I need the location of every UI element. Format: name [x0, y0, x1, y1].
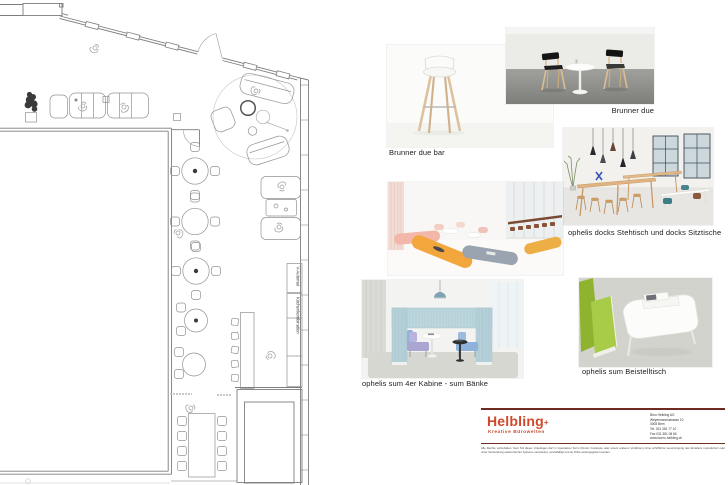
legal-text: Alle Rechte vorbehalten. Kein Teil diese… [481, 446, 725, 454]
floor-plan: V-Automat Küchenkombination [0, 0, 364, 485]
photo-ophelis-sum-baenke [388, 182, 563, 275]
photo-ophelis-sum-kabine [362, 280, 523, 378]
plan-booth [261, 177, 301, 240]
letterhead-footer: Helbling+ Kreative Bürowelten Büro Helbl… [481, 408, 725, 454]
photo-ophelis-sum-beistelltisch [579, 278, 712, 367]
product-label-brunner-due: Brunner due [506, 106, 654, 115]
photo-ophelis-docks [563, 128, 713, 225]
plan-label-kuechenkombination: Küchenkombination [296, 297, 301, 334]
product-label-ophelis-sum-beistelltisch: ophelis sum Beistelltisch [582, 367, 666, 376]
product-label-brunner-due-bar: Brunner due bar [389, 148, 445, 157]
plan-label-v-automat: V-Automat [296, 267, 301, 287]
brand-plus: + [544, 418, 549, 427]
plan-kitchen-units: V-Automat Küchenkombination [287, 264, 302, 387]
footer-rule-bottom [481, 443, 725, 444]
address-block: Büro Helbling AG Weyermannsstrasse 10 30… [650, 413, 683, 441]
plan-meeting-table [178, 414, 227, 478]
plan-lounge-benches [50, 93, 149, 118]
product-label-ophelis-sum-kabine: ophelis sum 4er Kabine - sum Bänke [362, 379, 488, 388]
rug [368, 352, 518, 378]
plan-floor-edges [0, 394, 231, 483]
moodboard: V-Automat Küchenkombination [0, 0, 728, 485]
address-line: www.buero-helbling.ch [650, 436, 683, 441]
plan-column [174, 114, 181, 121]
plan-round-tables-2 [175, 303, 208, 379]
helbling-logo: Helbling+ [487, 413, 549, 429]
plan-round-tables-4 [171, 143, 221, 300]
window [490, 282, 523, 348]
plan-counter [231, 313, 254, 389]
product-label-ophelis-docks: ophelis docks Stehtisch und docks Sitzti… [568, 228, 721, 237]
brand-name: Helbling [487, 413, 544, 429]
curtain [362, 280, 386, 358]
plan-plant [25, 92, 38, 122]
brand-tagline: Kreative Bürowelten [488, 430, 545, 435]
photo-brunner-due [506, 28, 654, 104]
plan-sofa-group [209, 72, 297, 167]
